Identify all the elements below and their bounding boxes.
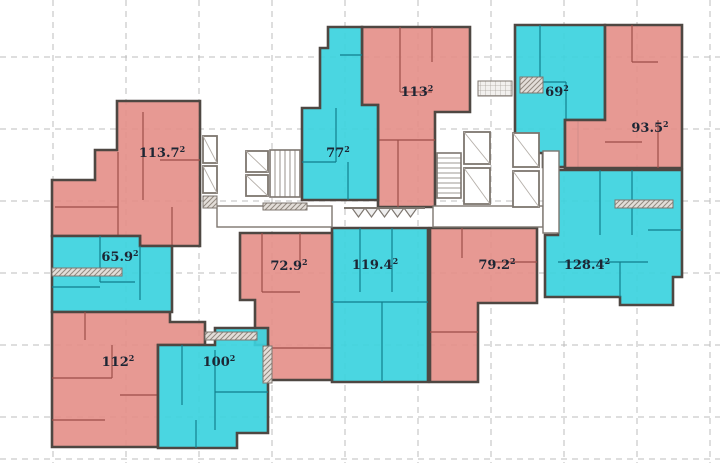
service-grid-box xyxy=(478,81,512,96)
area-label-113.7: 113.72 xyxy=(139,144,185,161)
unit-100[interactable]: 1002 xyxy=(158,328,268,448)
area-label-93.5: 93.52 xyxy=(631,119,668,136)
elevator-shaft xyxy=(513,171,539,207)
balcony-hatch xyxy=(263,346,272,383)
corridor xyxy=(543,151,559,233)
area-label-79.2: 79.22 xyxy=(478,256,515,273)
elevator-shaft xyxy=(464,132,490,164)
unit-128-4[interactable]: 128.42 xyxy=(545,170,682,305)
balcony-hatch xyxy=(615,200,673,208)
unit-119-4[interactable]: 119.42 xyxy=(332,228,428,382)
stair-outline xyxy=(437,153,461,198)
elevator-shaft xyxy=(464,168,490,204)
unit-79-2-outline[interactable] xyxy=(430,228,537,382)
floor-plan-canvas: 113.72113269293.5277265.9272.92119.4279.… xyxy=(0,0,720,463)
elevator-shaft xyxy=(246,175,268,196)
balcony-hatch xyxy=(263,203,307,210)
units-layer: 113.72113269293.5277265.9272.92119.4279.… xyxy=(52,25,682,448)
area-label-72.9: 72.92 xyxy=(270,257,307,274)
staircase xyxy=(437,153,461,198)
elevator-shaft xyxy=(513,133,539,167)
unit-113-7[interactable]: 113.72 xyxy=(52,101,200,246)
elevator-shaft xyxy=(203,166,217,193)
unit-128-4-outline[interactable] xyxy=(545,170,682,305)
unit-119-4-outline[interactable] xyxy=(332,228,428,382)
unit-113-7-outline[interactable] xyxy=(52,101,200,246)
area-label-119.4: 119.42 xyxy=(352,256,398,273)
staircase xyxy=(270,150,300,197)
corridor xyxy=(433,206,543,227)
balcony-hatch xyxy=(203,196,217,208)
entrance-canopy xyxy=(352,208,417,217)
floor-plan-svg: 113.72113269293.5277265.9272.92119.4279.… xyxy=(0,0,720,463)
balcony-hatch xyxy=(205,332,257,340)
area-label-128.4: 128.42 xyxy=(564,256,610,273)
balcony-hatch xyxy=(52,268,122,276)
area-label-65.9: 65.92 xyxy=(101,248,138,265)
balcony-hatch xyxy=(520,77,543,93)
elevator-shaft xyxy=(246,151,268,172)
unit-100-outline[interactable] xyxy=(158,328,268,448)
unit-79-2[interactable]: 79.22 xyxy=(430,228,537,382)
elevator-shaft xyxy=(203,136,217,163)
